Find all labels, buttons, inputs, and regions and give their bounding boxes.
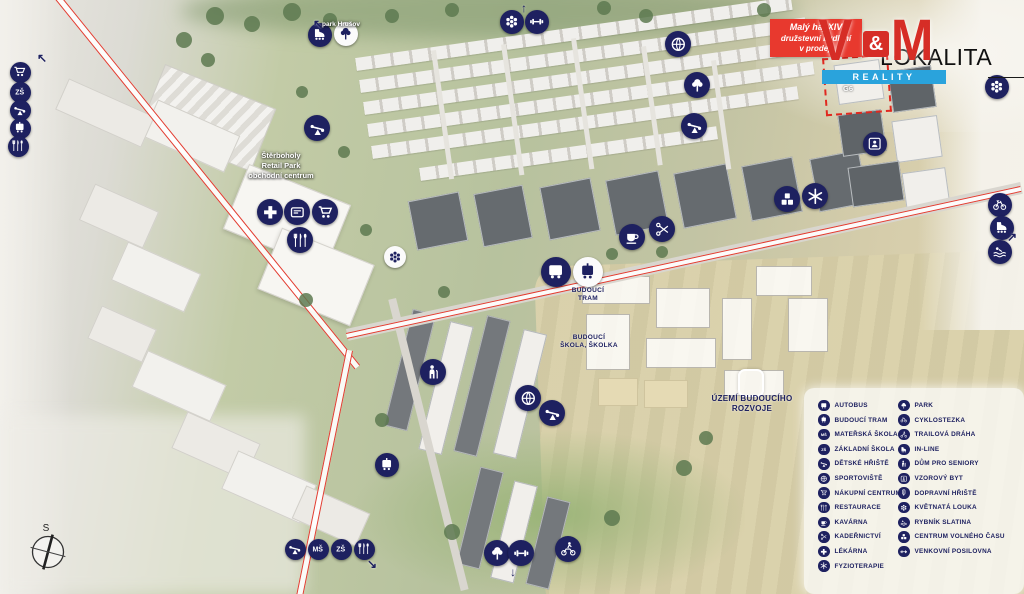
legend-item-label: SPORTOVIŠTĚ [835,475,883,482]
tree [360,224,372,236]
flower-icon [985,75,1009,99]
tree [639,9,653,23]
park-tree-icon [484,540,510,566]
legend-item-label: RESTAURACE [835,504,881,511]
future-tram-label: BUDOUCÍTRAM [572,287,604,304]
toy-blocks-icon [898,531,910,543]
restaurant-icon [287,227,313,253]
tree [296,86,308,98]
tree [244,16,260,32]
direction-arrow: ↖ [37,51,47,65]
legend-item-label: PARK [915,402,934,409]
logo-letter-v: V [818,12,852,70]
park-hrusov-label: park Hrušov [322,21,360,29]
tree [606,248,618,260]
legend-item: NÁKUPNÍ CENTRUM [818,488,901,499]
compass: S [24,520,72,576]
legend-item: IN-LINE [898,444,1005,455]
shopping-cart-icon [10,62,31,83]
tree [604,510,620,526]
vm-reality-logo: V & M REALITY [818,12,950,86]
restaurant-icon [8,136,29,157]
legend-item-label: DŮM PRO SENIORY [915,460,979,467]
tree [757,3,771,17]
legend-item-label: IN-LINE [915,446,940,453]
apartment-block [847,161,904,208]
future-school-building [722,298,752,360]
legend-item: BUDOUCÍ TRAM [818,415,901,426]
legend-item: ZÁKLADNÍ ŠKOLA [818,444,901,455]
future-school-building [788,298,828,352]
restaurant-icon [818,502,830,514]
nursery-school-icon [818,429,830,441]
playground-icon [539,400,565,426]
logo-letter-m: M [891,12,934,70]
industrial-building [79,183,159,248]
legend-item-label: BUDOUCÍ TRAM [835,417,888,424]
legend-item: CENTRUM VOLNÉHO ČASU [898,531,1005,542]
tree [283,3,301,21]
atm-icon [284,199,310,225]
legend-item: MATEŘSKÁ ŠKOLA [818,429,901,440]
legend-item-label: ZÁKLADNÍ ŠKOLA [835,446,895,453]
direction-arrow: ↗ [1007,230,1017,244]
shopping-cart-icon [818,487,830,499]
tree [206,7,224,25]
legend-item-label: MATEŘSKÁ ŠKOLA [835,431,898,438]
legend-item-label: KVĚTNATÁ LOUKA [915,504,977,511]
legend-item-label: CENTRUM VOLNÉHO ČASU [915,533,1005,540]
direction-arrow: ↓ [510,565,516,579]
legend-item: TRAILOVÁ DRÁHA [898,429,1005,440]
apartment-block [673,163,737,228]
legend-item: LÉKÁRNA [818,546,901,557]
sports-ball-icon [515,385,541,411]
apartment-block [473,185,532,248]
shopping-cart-icon [312,199,338,225]
trail-bike-icon [898,429,910,441]
future-school-building [646,338,716,368]
legend-item: DOPRAVNÍ HŘIŠTĚ [898,488,1005,499]
tree [699,431,713,445]
compass-north-label: S [43,523,50,534]
locality-map: G6 ↖↖↑↗↘↓ park HrušovŠtěrboholyRetail Pa… [0,0,1024,594]
tree [597,1,611,15]
physio-star-icon [818,560,830,572]
tree [445,3,459,17]
legend-item: DŮM PRO SENIORY [898,458,1005,469]
model-flat-icon [863,132,887,156]
legend-item: CYKLOSTEZKA [898,415,1005,426]
industrial-building [132,350,227,422]
tree [444,524,460,540]
legend-item: RESTAURACE [818,502,901,513]
apartment-block [891,115,942,163]
future-development-marker [738,369,764,397]
physio-star-icon [802,183,828,209]
wordmark-rule [988,77,1024,78]
legend-item-label: KAVÁRNA [835,519,868,526]
sports-court [644,380,688,408]
swimmer-icon [898,517,910,529]
industrial-building [55,78,155,147]
playground-icon [304,115,330,141]
legend-item-label: VZOROVÝ BYT [915,475,964,482]
park-tree-icon [898,400,910,412]
legend-column-2: PARKCYKLOSTEZKATRAILOVÁ DRÁHAIN-LINEDŮM … [898,400,1005,557]
scissors-icon [818,531,830,543]
future-school-building [656,288,710,328]
bicycle-icon [988,193,1012,217]
tree [299,293,313,307]
legend-item: KVĚTNATÁ LOUKA [898,502,1005,513]
sports-court [598,378,638,406]
logo-reality-bar: REALITY [822,70,946,84]
tram-icon [573,257,603,287]
apartment-block [539,178,600,241]
toy-blocks-icon [774,186,800,212]
playground-icon [285,539,306,560]
legend-item: RYBNÍK SLATINA [898,517,1005,528]
tree [438,286,450,298]
legend-item: AUTOBUS [818,400,901,411]
legend-item-label: KADEŘNICTVÍ [835,533,881,540]
legend-item: SPORTOVIŠTĚ [818,473,901,484]
dumbbell-icon [525,10,549,34]
primary-school-icon [818,444,830,456]
bicycle-icon [898,414,910,426]
trail-bike-icon [555,536,581,562]
legend-item-label: RYBNÍK SLATINA [915,519,972,526]
legend-item-label: TRAILOVÁ DRÁHA [915,431,976,438]
playground-icon [818,458,830,470]
scissors-icon [649,216,675,242]
legend-item: FYZIOTERAPIE [818,561,901,572]
senior-icon [420,359,446,385]
coffee-icon [619,224,645,250]
primary-school-icon [331,539,352,560]
inline-skate-icon [898,444,910,456]
direction-arrow: ↘ [367,557,377,571]
legend-item-label: CYKLOSTEZKA [915,417,966,424]
flower-icon [898,502,910,514]
legend-item-label: NÁKUPNÍ CENTRUM [835,490,902,497]
legend-item-label: FYZIOTERAPIE [835,563,885,570]
tram-icon [375,453,399,477]
legend-item: PARK [898,400,1005,411]
legend-item: VZOROVÝ BYT [898,473,1005,484]
legend-item: VENKOVNÍ POSILOVNA [898,546,1005,557]
tree [201,53,215,67]
bus-icon [541,257,571,287]
bus-icon [818,400,830,412]
legend-item-label: VENKOVNÍ POSILOVNA [915,548,992,555]
legend-item: KADEŘNICTVÍ [818,531,901,542]
legend-item: DĚTSKÉ HŘIŠTĚ [818,458,901,469]
legend-column-1: AUTOBUSBUDOUCÍ TRAMMATEŘSKÁ ŠKOLAZÁKLADN… [818,400,901,572]
legend-item-label: LÉKÁRNA [835,548,868,555]
dumbbell-icon [508,540,534,566]
tree [176,32,192,48]
tree [676,460,692,476]
retail-park-label: ŠtěrboholyRetail Parkobchodní centrum [248,151,313,180]
pharmacy-cross-icon [818,546,830,558]
apartment-block [408,191,469,250]
sports-ball-icon [665,31,691,57]
pharmacy-cross-icon [257,199,283,225]
logo-ampersand: & [863,31,889,57]
legend-item-label: AUTOBUS [835,402,868,409]
tree [656,246,668,258]
tree [338,146,350,158]
sports-ball-icon [818,473,830,485]
direction-arrow: ↑ [521,1,527,15]
future-school-building [756,266,812,296]
flower-icon [384,246,406,268]
traffic-light-icon [898,487,910,499]
tram-icon [818,414,830,426]
industrial-building [111,242,201,313]
dumbbell-icon [898,546,910,558]
future-development-label: ÚZEMÍ BUDOUCÍHOROZVOJE [712,394,793,415]
senior-icon [898,458,910,470]
tree [375,413,389,427]
legend-item-label: DĚTSKÉ HŘIŠTĚ [835,460,889,467]
future-school-label: BUDOUCÍŠKOLA, ŠKOLKA [560,334,618,351]
legend-item-label: DOPRAVNÍ HŘIŠTĚ [915,490,977,497]
playground-icon [681,113,707,139]
tree [385,9,399,23]
legend-item: KAVÁRNA [818,517,901,528]
model-flat-icon [898,473,910,485]
coffee-icon [818,517,830,529]
park-tree-icon [684,72,710,98]
legend-panel: AUTOBUSBUDOUCÍ TRAMMATEŘSKÁ ŠKOLAZÁKLADN… [804,388,1024,594]
nursery-school-icon [308,539,329,560]
